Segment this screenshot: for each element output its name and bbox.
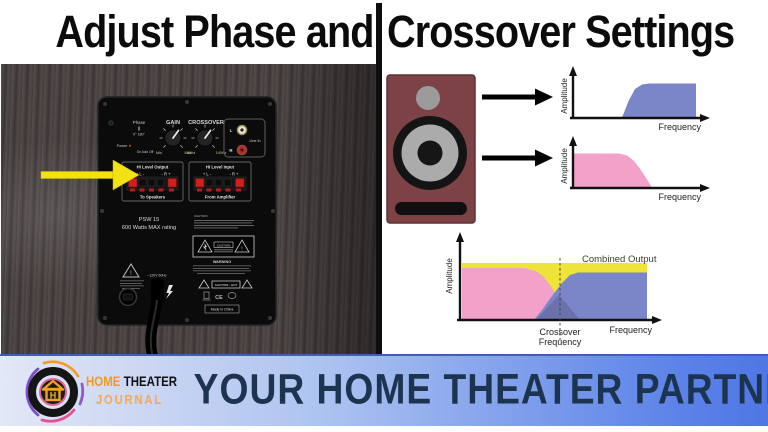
terminal-slot [148,179,155,186]
flow-arrows [482,89,553,167]
logo-theater: THEATER [124,373,177,389]
logo-line1: HOMETHEATER [86,373,177,389]
crossover-label: CROSSOVER [188,120,224,126]
power-modes: On Auto Off [137,150,154,154]
terminal-red-left [196,179,205,188]
banner: H HOMETHEATER JOURNAL YOUR HOME THEATER … [0,354,768,426]
x-axis-arrow [700,114,710,122]
y-axis-label: Amplitude [560,78,569,114]
x-axis-label: Frequency [658,192,701,202]
speaker-port [395,202,467,215]
y-axis-arrow [569,66,577,76]
y-axis-label: Amplitude [445,258,454,294]
caution-sticker: ! CAUTION [193,236,254,257]
thumbnail: Adjust Phase and Crossover Settings Phas… [0,0,768,432]
terminal-red-right [168,179,177,188]
gain-min: Min [156,151,162,155]
rca-jack-left-hole [240,128,243,131]
phase-positions: 0° 180° [133,133,145,137]
logo-journal: JOURNAL [96,392,163,407]
ac-inlet-slot [124,294,133,300]
page-title-left: Adjust Phase and [56,9,374,54]
from-amplifier-caption: From Amplifier [205,195,236,200]
x-axis-arrow [652,316,662,324]
caution-hot-label: CAUTION - HOT [215,283,238,287]
terminal-slot [224,179,231,186]
phase-label: Phase [133,120,146,125]
combined-output-label: Combined Output [582,254,657,265]
high-pass-area [622,84,696,118]
rating-label: 600 Watts MAX rating [122,225,176,231]
hi-level-input-right-terminal-label: - R + [229,172,239,177]
swirl-right [80,384,83,404]
arrow-shaft [41,172,113,179]
y-axis-arrow [456,232,464,242]
line-in-label: Line In [249,139,260,143]
y-axis-label: Amplitude [560,148,569,184]
model-label: PSW 15 [139,217,160,223]
sticker-line [214,250,233,251]
x-axis-arrow [700,184,710,192]
caution-word: CAUTION [217,243,231,247]
line-in-left-label: L [230,128,233,133]
home-theater-journal-logo: H HOMETHEATER JOURNAL [8,358,183,426]
hi-level-input-left-terminal-label: + L - [203,172,212,177]
terminal-slot [215,179,222,186]
made-in-label: Made in China [211,308,234,312]
arrow-top-head [535,89,553,106]
amp-plate-graphic: Phase 0° 180° Power On Auto Off GAIN [1,64,376,354]
power-spec-label: ~120V 60Hz [147,274,167,278]
to-speakers-caption: To Speakers [140,195,166,200]
crossover-max: 140Hz [216,151,227,155]
warning-heading: WARNING [213,260,231,264]
exclamation-mark: ! [241,247,242,253]
power-led [109,121,113,125]
crossover-frequency-label-line1: Crossover [539,327,580,337]
logo-home: HOME [86,373,121,389]
title-divider [376,3,382,354]
crossover-diagram: Amplitude Frequency Amplitude Frequency [384,62,768,354]
y-axis-arrow [569,136,577,146]
terminal-slot [157,179,164,186]
hi-level-output-right-terminal-label: - R + [161,172,171,177]
banner-slogan: YOUR HOME THEATER PARTNER [194,369,751,412]
combined-chart: Combined Output Amplitude Frequency Cros… [445,232,662,347]
terminal-slot [206,179,213,186]
ce-mark: CE [215,295,223,301]
hi-level-output-title: Hi Level Output [137,165,169,170]
power-label: Power [117,144,128,148]
hi-level-input-title: Hi Level Input [206,165,235,170]
subwoofer-photo: Phase 0° 180° Power On Auto Off GAIN [1,64,376,354]
terminal-slot [139,179,146,186]
low-pass-area [574,154,652,189]
page-title-right: Crossover Settings [387,9,734,54]
sticker-line [214,252,233,253]
high-pass-chart: Amplitude Frequency [560,66,710,132]
x-axis-label: Frequency [609,325,652,335]
power-dot [129,145,131,147]
rca-jack-right-hole [240,148,243,151]
logo-house-letter: H [50,391,57,401]
terminal-red-right [236,179,245,188]
speaker-illustration [387,75,475,223]
crossover-frequency-label-line2: Frequency [539,337,582,347]
crossover-min: 40Hz [187,151,196,155]
caution-heading: CAUTION [194,214,208,218]
speaker-woofer-cap [418,141,443,166]
arrow-bottom-head [535,150,553,167]
x-axis-label: Frequency [658,122,701,132]
low-pass-chart: Amplitude Frequency [560,136,710,202]
speaker-tweeter [416,86,440,110]
